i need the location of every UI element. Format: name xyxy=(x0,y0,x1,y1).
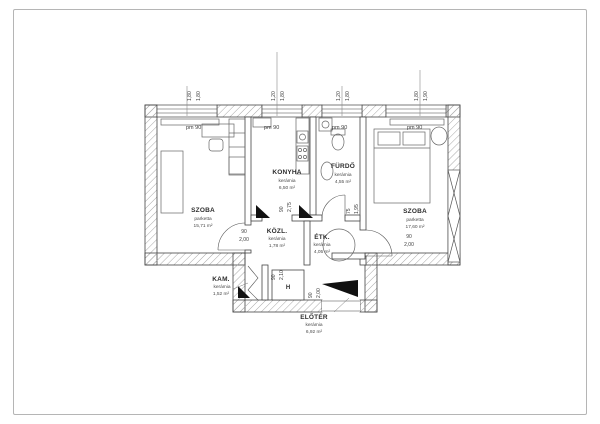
svg-text:kerámia: kerámia xyxy=(213,284,230,290)
svg-text:FÜRDŐ: FÜRDŐ xyxy=(331,161,355,170)
sill-label-1: pm 90 xyxy=(186,125,201,131)
svg-text:15,71 m²: 15,71 m² xyxy=(194,223,213,229)
armchair-icon xyxy=(431,127,447,145)
floor-plan-page: H xyxy=(0,0,600,424)
door-right-h: 2,00 xyxy=(404,242,414,248)
closet-label: H xyxy=(286,285,290,291)
door-bath-h: 1,95 xyxy=(354,204,360,214)
svg-text:KÖZL.: KÖZL. xyxy=(267,226,288,235)
bed-icon xyxy=(374,129,430,203)
sill-label-2: pm 90 xyxy=(264,125,279,131)
win1-dim-b: 1,80 xyxy=(196,91,202,101)
sink-icon xyxy=(297,131,308,143)
win2-dim-b: 1,80 xyxy=(280,91,286,101)
svg-text:6,92 m²: 6,92 m² xyxy=(306,329,323,335)
svg-text:ELŐTÉR: ELŐTÉR xyxy=(300,312,328,321)
toilet-icon xyxy=(331,129,345,150)
sill-label-4: pm 90 xyxy=(407,125,422,131)
svg-text:4,55 m²: 4,55 m² xyxy=(335,179,352,185)
pass-kitchen-h: 2,75 xyxy=(287,202,293,212)
door-entry-h: 2,00 xyxy=(316,288,322,298)
floor-plan-drawing: H xyxy=(0,0,600,424)
svg-text:KONYHA: KONYHA xyxy=(272,169,301,176)
room-label-szoba-right: SZOBA parketta 17,60 m² xyxy=(403,208,427,230)
pass-kitchen-w: 90 xyxy=(279,206,285,212)
room-label-konyha: KONYHA kerámia 6,50 m² xyxy=(272,169,301,191)
svg-text:1,52 m²: 1,52 m² xyxy=(213,291,230,297)
entrance-door-leaf xyxy=(322,280,358,297)
svg-text:parketta: parketta xyxy=(406,217,424,223)
room-label-szoba-left: SZOBA parketta 15,71 m² xyxy=(191,207,215,229)
wedge-hall xyxy=(256,205,270,218)
svg-text:SZOBA: SZOBA xyxy=(403,208,427,215)
stove-icon xyxy=(297,146,308,161)
door-bath-w: 75 xyxy=(346,208,352,214)
win3-dim-b: 1,80 xyxy=(345,91,351,101)
svg-text:kerámia: kerámia xyxy=(305,322,322,328)
win4-dim-a: 1,80 xyxy=(414,91,420,101)
shaft-x-brace xyxy=(448,170,460,262)
door-left-h: 2,00 xyxy=(239,237,249,243)
room-label-kozl: KÖZL. kerámia 1,78 m² xyxy=(267,226,288,249)
svg-text:17,60 m²: 17,60 m² xyxy=(406,224,425,230)
win2-dim-a: 1,20 xyxy=(271,91,277,101)
sill-label-3: pm 90 xyxy=(332,125,347,131)
windows xyxy=(157,105,446,117)
svg-text:SZOBA: SZOBA xyxy=(191,207,215,214)
door-pantry-w: 90 xyxy=(271,274,277,280)
svg-text:kerámia: kerámia xyxy=(278,178,295,184)
window-4 xyxy=(386,105,446,117)
entrance-opening xyxy=(322,300,360,312)
room-label-furdo: FÜRDŐ kerámia 4,55 m² xyxy=(331,161,355,185)
window-2 xyxy=(262,105,302,117)
washer-icon xyxy=(319,118,332,131)
win3-dim-a: 1,20 xyxy=(336,91,342,101)
door-pantry-h: 2,10 xyxy=(279,270,285,280)
win4-dim-b: 1,90 xyxy=(423,91,429,101)
room-label-etk: ÉTK. kerámia 4,05 m² xyxy=(313,232,330,255)
wardrobe-icon xyxy=(229,119,245,175)
win1-dim-a: 1,80 xyxy=(187,91,193,101)
svg-text:ÉTK.: ÉTK. xyxy=(314,232,330,241)
door-arc-room-right xyxy=(366,230,392,256)
door-arc-bathroom xyxy=(322,195,345,218)
folding-door-pantry xyxy=(248,266,258,300)
svg-text:parketta: parketta xyxy=(194,216,212,222)
window-dimension-labels: 1,80 1,80 1,20 1,80 1,20 1,80 1,80 1,90 xyxy=(187,91,429,101)
svg-text:KAM.: KAM. xyxy=(212,276,229,283)
door-right-w: 90 xyxy=(406,234,412,240)
cabinet-left-icon xyxy=(161,151,183,213)
door-entry-w: 90 xyxy=(308,292,314,298)
room-label-kam: KAM. kerámia 1,52 m² xyxy=(212,276,231,297)
svg-text:1,78 m²: 1,78 m² xyxy=(269,243,286,249)
sill-height-labels: pm 90 pm 90 pm 90 pm 90 xyxy=(186,125,422,131)
room-label-eloter: ELŐTÉR kerámia 6,92 m² xyxy=(300,312,328,335)
svg-text:kerámia: kerámia xyxy=(268,236,285,242)
svg-text:kerámia: kerámia xyxy=(313,242,330,248)
svg-text:6,50 m²: 6,50 m² xyxy=(279,185,296,191)
svg-text:kerámia: kerámia xyxy=(334,172,351,178)
svg-text:4,05 m²: 4,05 m² xyxy=(314,249,331,255)
door-left-w: 90 xyxy=(241,229,247,235)
